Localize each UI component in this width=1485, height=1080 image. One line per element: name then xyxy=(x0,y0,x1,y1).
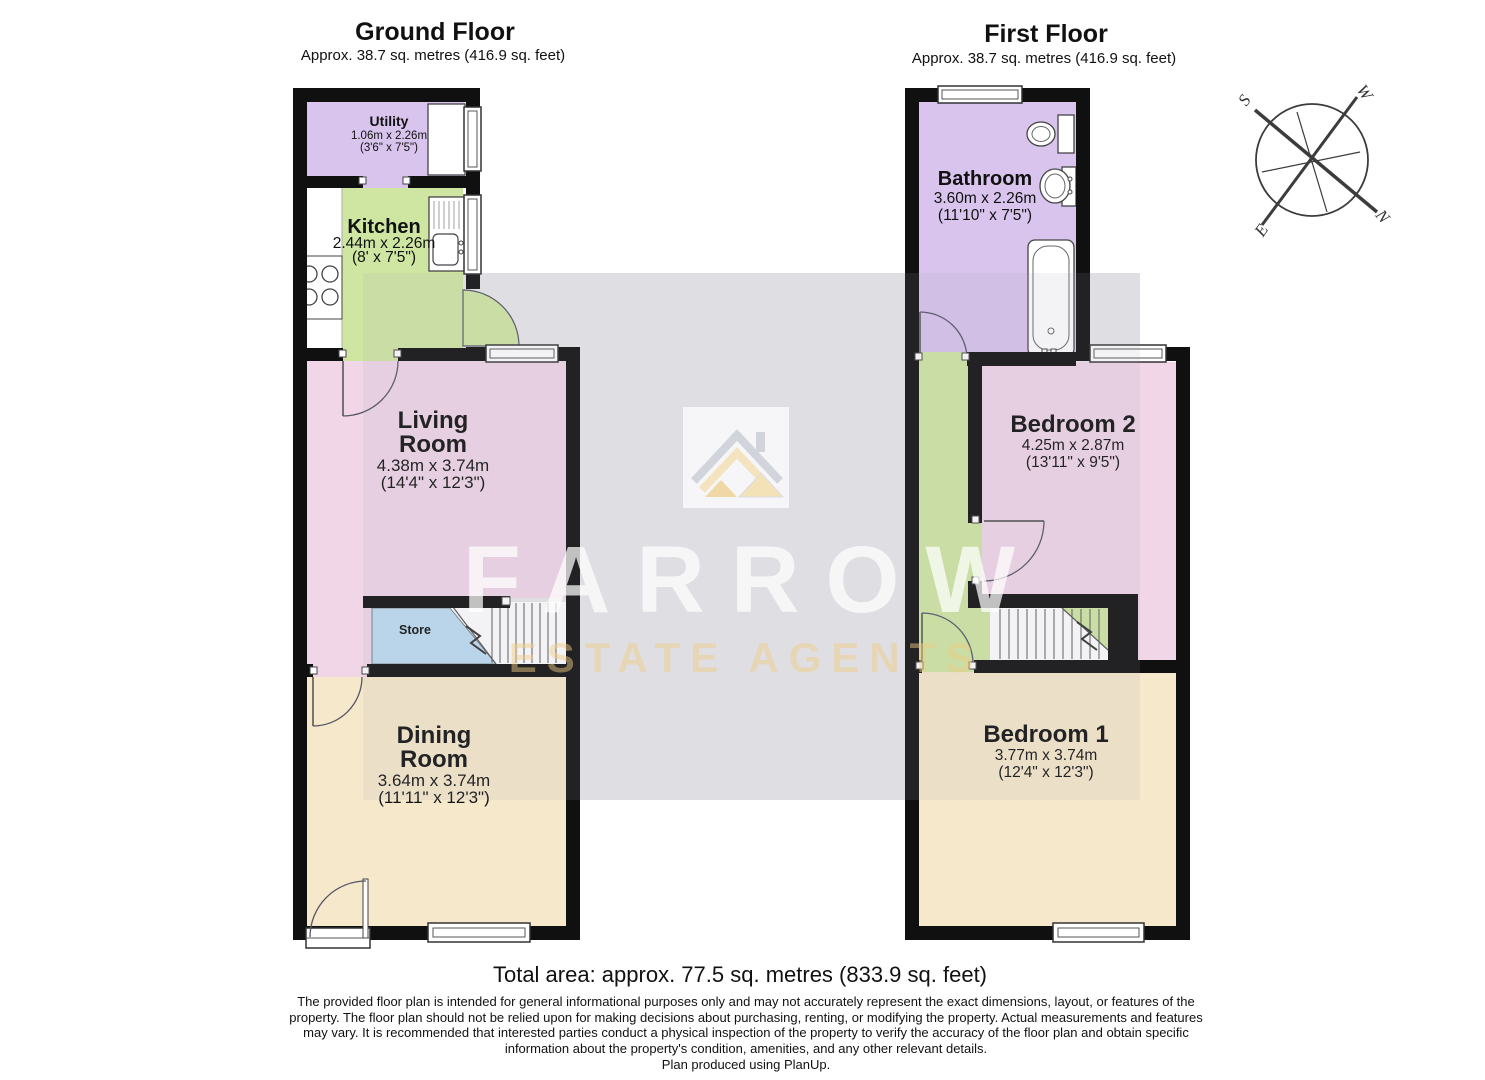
utility-window xyxy=(464,107,481,171)
room-dims-bathroom-ft: (11'10" x 7'5") xyxy=(938,207,1032,224)
front-door-threshold xyxy=(306,928,370,948)
plan-headers: Ground Floor Approx. 38.7 sq. metres (41… xyxy=(301,18,1176,67)
dining-doorway-floor xyxy=(313,664,367,677)
total-area-text: Total area: approx. 77.5 sq. metres (833… xyxy=(493,962,987,987)
room-dims-utility-ft: (3'6" x 7'5") xyxy=(360,142,418,154)
utility-appliance-icon xyxy=(428,104,465,175)
kitchen-window xyxy=(464,195,481,274)
bedroom1-window xyxy=(1053,923,1144,942)
room-dims-utility-m: 1.06m x 2.26m xyxy=(351,130,427,142)
room-label-bathroom: Bathroom xyxy=(938,168,1032,190)
compass-south-label: S xyxy=(1234,91,1255,109)
floor-plan-canvas: Utility 1.06m x 2.26m (3'6" x 7'5") Kitc… xyxy=(0,0,1485,1080)
floor-plan-page: Utility 1.06m x 2.26m (3'6" x 7'5") Kitc… xyxy=(0,0,1485,1080)
first-floor-area: Approx. 38.7 sq. metres (416.9 sq. feet) xyxy=(912,50,1176,67)
disclaimer-line-5: Plan produced using PlanUp. xyxy=(662,1057,830,1072)
footer-text: Total area: approx. 77.5 sq. metres (833… xyxy=(289,962,1203,1072)
ground-floor-title: Ground Floor xyxy=(355,18,515,46)
compass-west-label: W xyxy=(1353,81,1378,105)
compass-east-label: E xyxy=(1250,220,1272,241)
disclaimer-line-3: may vary. It is recommended that interes… xyxy=(303,1025,1189,1040)
bathroom-window xyxy=(938,86,1022,103)
watermark-brand-text: FARROW xyxy=(463,527,1041,633)
living-room-floor-strip xyxy=(307,598,372,664)
room-dims-bathroom-m: 3.60m x 2.26m xyxy=(934,190,1037,207)
watermark-tagline-text: ESTATE AGENTS xyxy=(509,634,984,681)
dining-room-window xyxy=(428,923,530,942)
room-dims-kitchen-ft: (8' x 7'5") xyxy=(352,249,416,266)
first-floor-title: First Floor xyxy=(984,20,1108,48)
sink-icon xyxy=(429,197,466,271)
compass-rose: S W E N xyxy=(1234,81,1394,241)
brand-logo-icon xyxy=(683,407,789,508)
disclaimer-line-2: property. The floor plan should not be r… xyxy=(289,1010,1203,1025)
ground-floor-area: Approx. 38.7 sq. metres (416.9 sq. feet) xyxy=(301,47,565,64)
disclaimer-line-4: information about the property's conditi… xyxy=(505,1041,987,1056)
watermark: FARROW ESTATE AGENTS xyxy=(363,273,1140,800)
bedroom2-floor-notch xyxy=(1138,594,1176,660)
room-label-utility: Utility xyxy=(370,113,409,129)
utility-doorway-floor xyxy=(363,176,408,190)
disclaimer-line-1: The provided floor plan is intended for … xyxy=(297,994,1195,1009)
